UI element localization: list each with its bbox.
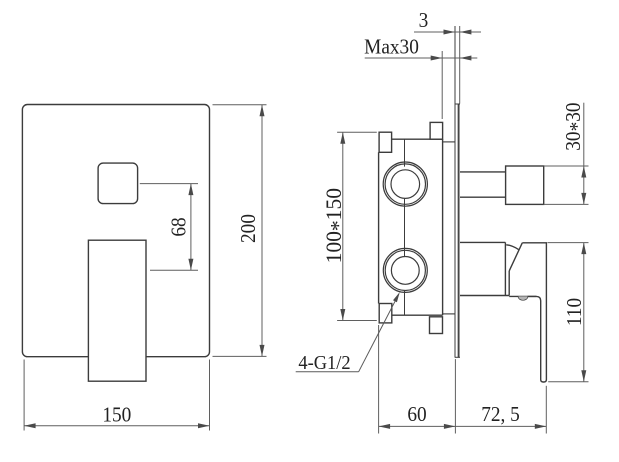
svg-text:110: 110 — [563, 298, 586, 326]
svg-text:30*30: 30*30 — [562, 102, 589, 150]
svg-text:3: 3 — [419, 9, 429, 32]
svg-text:60: 60 — [407, 403, 426, 426]
svg-text:150: 150 — [102, 404, 131, 427]
svg-text:68: 68 — [168, 217, 191, 236]
svg-text:Max30: Max30 — [364, 36, 419, 59]
svg-text:200: 200 — [237, 214, 260, 243]
svg-text:72, 5: 72, 5 — [481, 403, 520, 426]
svg-text:4-G1/2: 4-G1/2 — [298, 352, 350, 374]
